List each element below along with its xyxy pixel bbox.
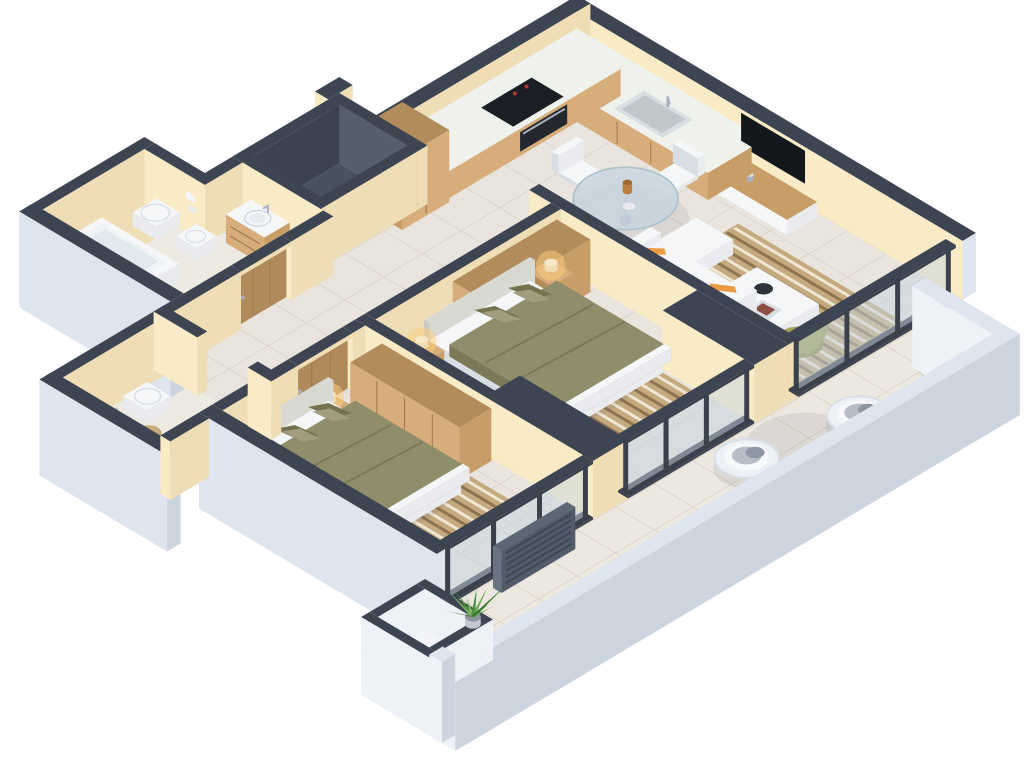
wall-bathroom-2-northeast-a-face-se — [197, 332, 207, 397]
dining-chair-north-back-face-se — [698, 155, 705, 178]
living-room-sliding-door-post — [844, 305, 849, 364]
balcony-ac-louver-face-sw — [493, 546, 501, 593]
wall-northeast-face-se — [963, 233, 976, 300]
bathroom-2-toilet-seat — [135, 388, 161, 404]
cooktop-burner-light — [513, 92, 517, 96]
cooktop-burner-light — [525, 85, 529, 89]
apartment-3d-floorplan-stage: 3D isometric cutaway floor plan render o… — [0, 0, 1024, 768]
balcony-parapet-southwest-face-se — [442, 654, 455, 743]
bedroom-2-lamp-shade-top — [544, 259, 557, 267]
balcony-parapet-southwest-face-sw — [429, 655, 442, 744]
elevator-shaft-wall-nw-face-se — [417, 146, 427, 211]
bedroom-2-sliding-door-post — [744, 365, 749, 424]
bedroom-2-sliding-door-post — [664, 413, 669, 472]
bathroom-1-door-handle — [241, 296, 245, 300]
balcony-shaft-wall-n-face-se — [485, 620, 493, 666]
bedroom-2-lamp-shade-top — [415, 336, 428, 344]
bathroom-1-toilet-seat — [141, 204, 170, 221]
dining-chair-west-back-face-sw — [552, 152, 559, 175]
balcony-wicker-chair-pillow — [746, 447, 765, 458]
apartment-3d-floorplan: 3D isometric cutaway floor plan render o… — [0, 0, 1024, 768]
living-room-sliding-door-post — [895, 275, 900, 334]
bathroom-1-bidet-rim — [186, 230, 206, 242]
dining-table-bowl — [622, 202, 636, 211]
living-room-sliding-door-post — [794, 336, 799, 395]
dining-table-vase-top — [623, 180, 633, 186]
bedroom-2-sliding-door-post — [704, 389, 709, 448]
bedroom-1-door-handle — [298, 390, 302, 394]
wall-bathroom-2-east-face-sw — [160, 436, 170, 501]
coffee-table-bowl — [754, 283, 773, 294]
wall-bathroom-2-northeast-b-face-se — [271, 376, 281, 441]
bathroom-1-sink-basin — [249, 213, 266, 223]
bedroom-2-sliding-door-post — [623, 437, 628, 496]
bedroom-1-sliding-door-post — [583, 461, 588, 520]
